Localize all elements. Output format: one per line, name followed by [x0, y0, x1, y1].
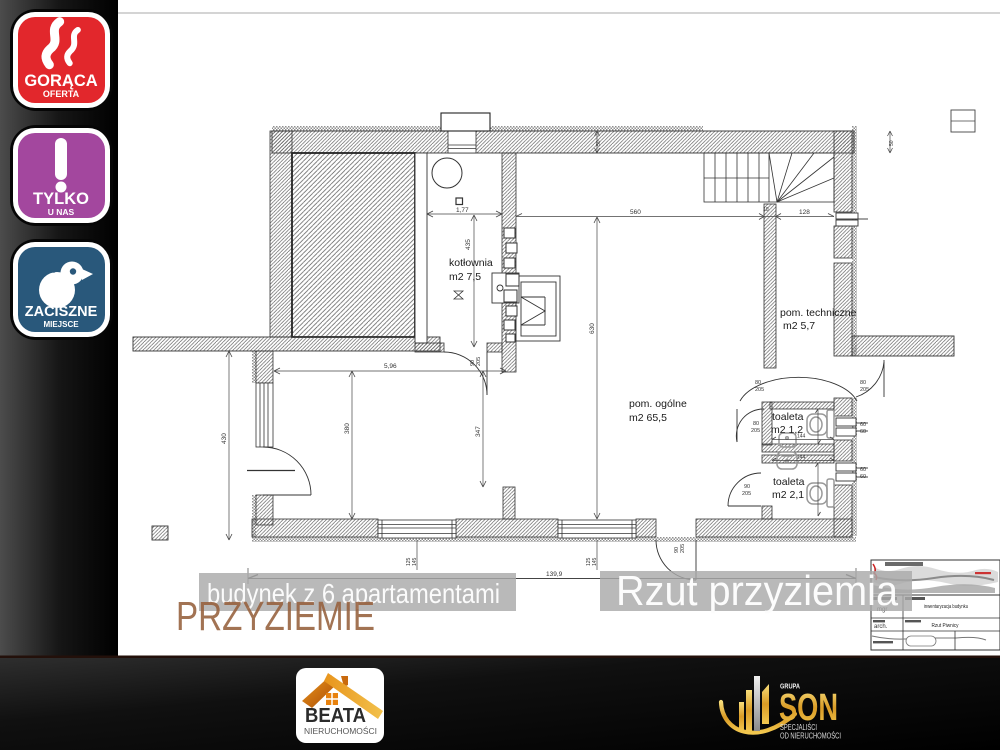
svg-text:MIEJSCE: MIEJSCE	[43, 320, 79, 329]
svg-text:145: 145	[592, 557, 598, 566]
svg-text:m2 5,7: m2 5,7	[783, 320, 815, 332]
svg-text:60: 60	[860, 422, 866, 428]
svg-text:NIERUCHOMOŚCI: NIERUCHOMOŚCI	[304, 725, 377, 736]
svg-text:60: 60	[860, 429, 866, 435]
svg-text:205: 205	[860, 387, 869, 393]
svg-text:144: 144	[797, 455, 806, 461]
svg-text:TYLKO: TYLKO	[33, 190, 89, 208]
svg-text:205: 205	[476, 357, 482, 366]
svg-text:m2 2,1: m2 2,1	[772, 489, 804, 501]
svg-text:m2 1,2: m2 1,2	[771, 424, 803, 436]
svg-text:145: 145	[412, 557, 418, 566]
svg-text:139,9: 139,9	[546, 571, 563, 578]
svg-text:80: 80	[755, 380, 761, 386]
svg-text:80: 80	[860, 380, 866, 386]
svg-text:80: 80	[753, 421, 759, 427]
svg-text:toaleta: toaleta	[773, 476, 805, 488]
svg-text:205: 205	[680, 544, 686, 553]
svg-text:U NAS: U NAS	[48, 207, 75, 217]
svg-text:60: 60	[860, 467, 866, 473]
svg-text:205: 205	[751, 428, 760, 434]
svg-text:630: 630	[589, 323, 596, 334]
svg-text:435: 435	[465, 239, 472, 250]
svg-text:GORĄCA: GORĄCA	[24, 72, 97, 90]
svg-text:380: 380	[344, 423, 351, 434]
svg-text:205: 205	[742, 491, 751, 497]
svg-text:128: 128	[799, 209, 810, 216]
svg-text:pom. ogólne: pom. ogólne	[629, 398, 687, 410]
svg-text:560: 560	[630, 209, 641, 216]
svg-text:arch.: arch.	[874, 624, 888, 630]
svg-text:pom. techniczne: pom. techniczne	[780, 307, 857, 319]
svg-text:Rzut Piwnicy: Rzut Piwnicy	[932, 623, 959, 629]
svg-text:toaleta: toaleta	[772, 411, 804, 423]
svg-text:60: 60	[860, 474, 866, 480]
svg-text:OD NIERUCHOMOŚCI: OD NIERUCHOMOŚCI	[780, 732, 841, 741]
svg-text:inwentaryzacja budynku: inwentaryzacja budynku	[924, 604, 968, 610]
svg-text:205: 205	[755, 387, 764, 393]
svg-text:PRZYZIEMIE: PRZYZIEMIE	[176, 593, 375, 639]
svg-text:m2 65,5: m2 65,5	[629, 412, 667, 424]
svg-text:OFERTA: OFERTA	[43, 89, 80, 99]
svg-text:ZACISZNE: ZACISZNE	[25, 304, 98, 320]
svg-text:5,96: 5,96	[384, 363, 397, 370]
svg-text:90: 90	[744, 484, 750, 490]
svg-text:m2 7,5: m2 7,5	[449, 271, 481, 283]
svg-text:10: 10	[763, 207, 769, 213]
svg-text:Rzut przyziemia: Rzut przyziemia	[616, 567, 899, 614]
svg-text:50: 50	[596, 140, 602, 146]
svg-text:1,77: 1,77	[456, 207, 469, 214]
svg-text:BEATA: BEATA	[305, 705, 366, 727]
svg-text:50: 50	[889, 140, 895, 146]
svg-text:kotłownia: kotłownia	[449, 257, 493, 269]
svg-text:430: 430	[221, 433, 228, 444]
svg-text:347: 347	[475, 426, 482, 437]
